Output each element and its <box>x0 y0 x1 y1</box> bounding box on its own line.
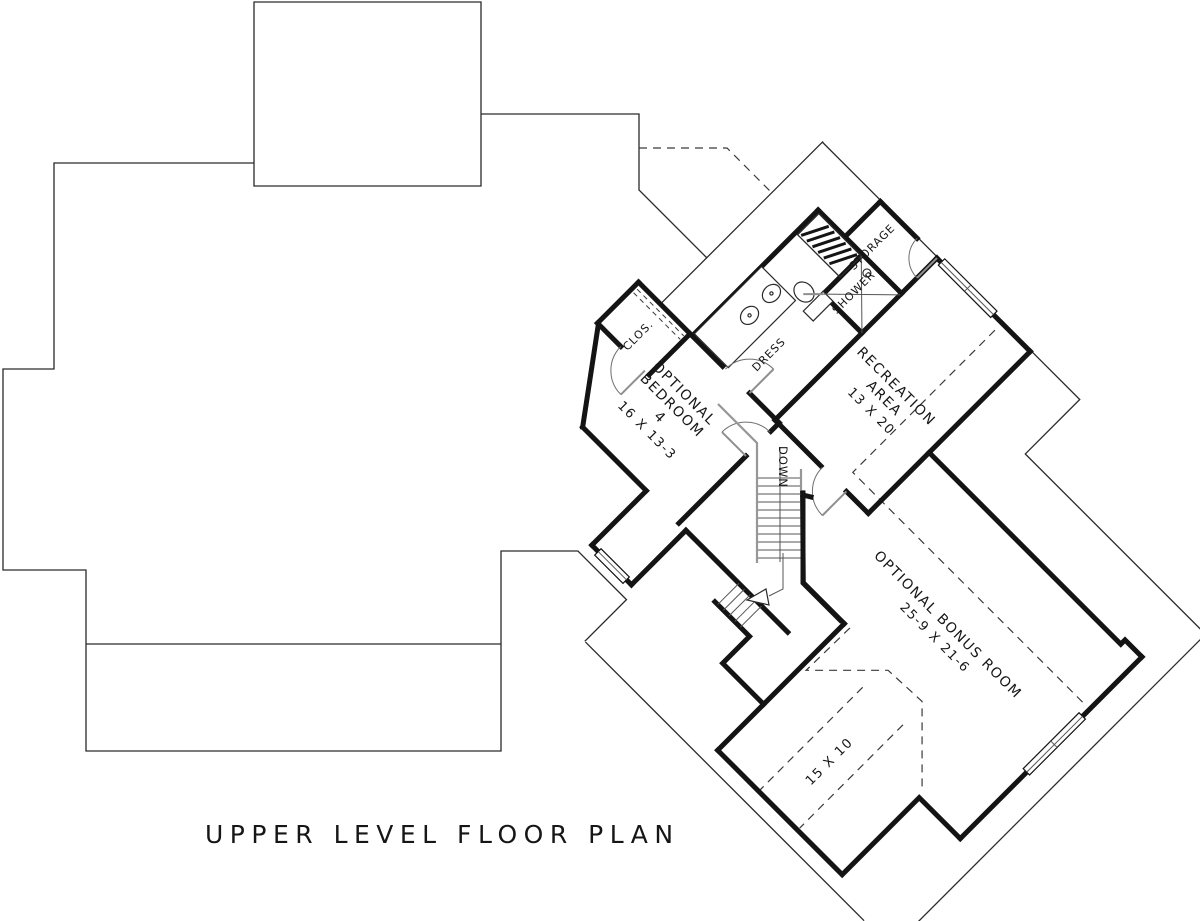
stair-flight-treads <box>718 583 762 627</box>
label-closet: CLOS. <box>620 318 656 354</box>
window-bonus <box>1023 713 1085 775</box>
roof-outline-left <box>3 2 707 751</box>
door-closet <box>597 346 645 394</box>
label-stairs-down: DOWN <box>776 446 790 488</box>
drawing-title: UPPER LEVEL FLOOR PLAN <box>205 820 680 849</box>
roof-dashed-lines <box>639 148 770 191</box>
rotated-structure: OPTIONAL BEDROOM 4 16 X 13-3 RECREATION … <box>426 117 1200 921</box>
stair-railing <box>718 404 757 563</box>
label-bonus-name: OPTIONAL BONUS ROOM <box>870 548 1024 702</box>
door-storage <box>897 238 937 278</box>
window-recreation <box>938 259 997 318</box>
floor-plan-page: OPTIONAL BEDROOM 4 16 X 13-3 RECREATION … <box>0 0 1200 921</box>
window-bedroom <box>595 549 630 584</box>
label-alcove-dims: 15 X 10 <box>803 735 857 789</box>
staircase: DOWN <box>718 404 840 620</box>
floor-plan-drawing: OPTIONAL BEDROOM 4 16 X 13-3 RECREATION … <box>0 0 1200 921</box>
walls <box>444 121 1200 916</box>
label-shower: SHOWER <box>830 268 878 316</box>
door-recreation <box>798 467 846 515</box>
